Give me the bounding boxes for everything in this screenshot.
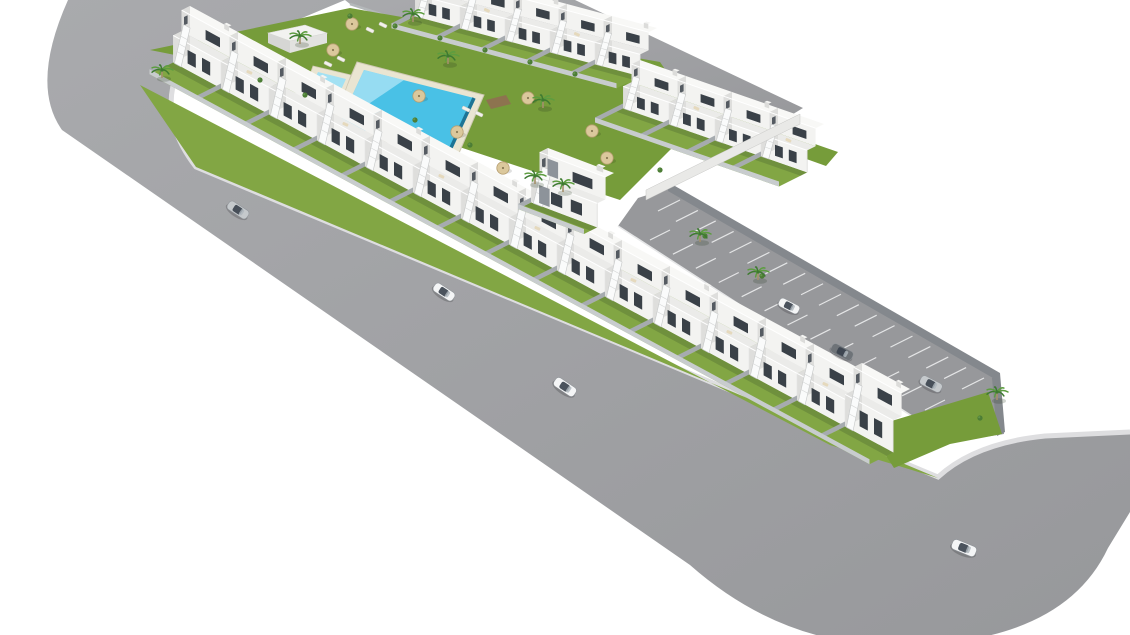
bush (347, 13, 352, 18)
window (442, 7, 450, 20)
bush (467, 142, 472, 147)
window (472, 171, 476, 181)
window (532, 31, 540, 44)
window (577, 43, 585, 56)
bush (572, 71, 577, 76)
window (184, 15, 188, 25)
window (424, 145, 428, 155)
bush (437, 35, 442, 40)
window (609, 52, 617, 65)
bush (412, 117, 417, 122)
window (564, 40, 572, 53)
window (622, 55, 630, 68)
bush (527, 59, 532, 64)
window (376, 119, 380, 129)
window (519, 28, 527, 41)
bush (657, 167, 662, 172)
parasol (497, 162, 512, 174)
bush (392, 23, 397, 28)
window (808, 353, 812, 363)
window (664, 275, 668, 285)
window (487, 19, 495, 32)
window (760, 327, 764, 337)
window (474, 16, 482, 29)
window (328, 93, 332, 103)
window (712, 301, 716, 311)
window (542, 158, 546, 169)
architectural-rendering (0, 0, 1130, 635)
bush (482, 47, 487, 52)
window (280, 67, 284, 77)
bush (302, 92, 307, 97)
bush (977, 415, 982, 420)
site-plan-rendering (0, 0, 1130, 635)
window (856, 373, 860, 384)
bush (257, 77, 262, 82)
window (429, 4, 437, 17)
window (232, 41, 236, 51)
